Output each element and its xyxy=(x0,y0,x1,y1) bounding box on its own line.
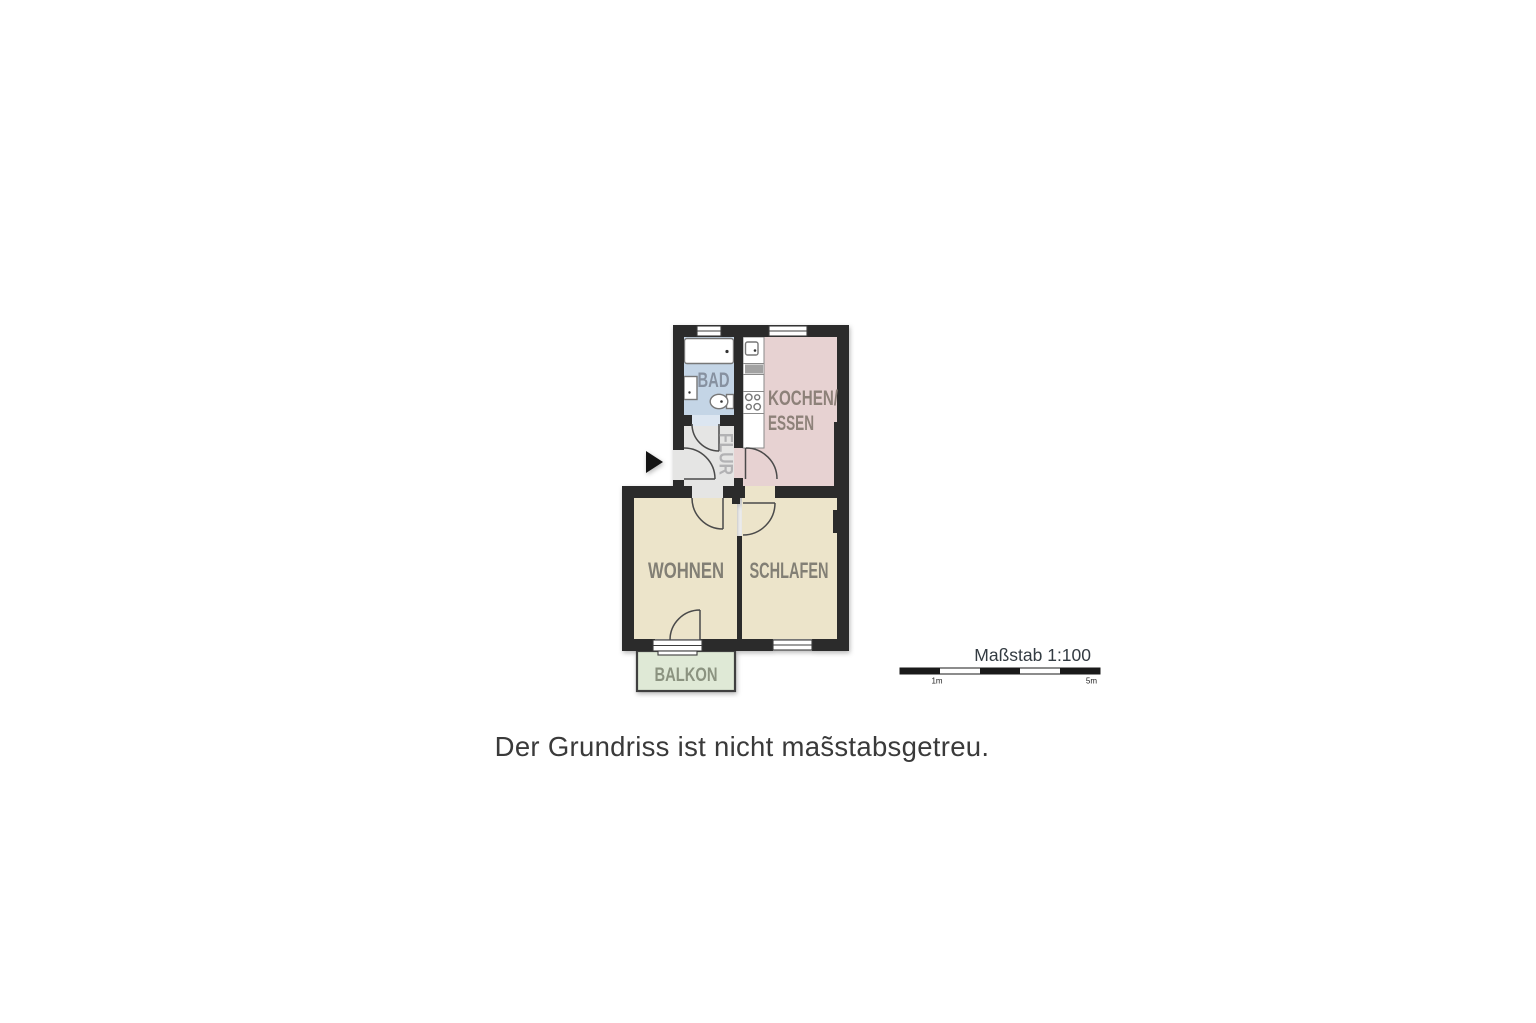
kitchen-hatch-icon xyxy=(746,365,762,374)
wall-left-upper xyxy=(673,337,684,450)
wall-bad-bottom-left xyxy=(684,415,692,426)
schlafen-doorway-floor xyxy=(745,486,775,498)
wall-mid-stub xyxy=(723,486,745,498)
wohnen-doorway-floor xyxy=(692,486,723,498)
label-kochen-line1: KOCHEN/ xyxy=(768,387,838,410)
toilet-icon xyxy=(710,394,733,408)
wall-kochen-door-stub xyxy=(734,478,743,486)
floor-plan-canvas: BAD KOCHEN/ ESSEN FLUR WOHNEN SCHLAFEN B… xyxy=(0,0,1536,1023)
kitchen-sink-icon xyxy=(746,342,759,355)
scale-tick-5m: 5m xyxy=(1086,677,1097,686)
kitchen-unit xyxy=(743,337,764,448)
label-wohnen: WOHNEN xyxy=(648,558,724,583)
wall-mid-left xyxy=(622,486,692,498)
kitchen-faucet-dot xyxy=(754,349,757,352)
wall-bottom-right xyxy=(812,639,849,651)
entrance-doorway-floor xyxy=(673,450,684,480)
bad-doorway-floor xyxy=(692,415,720,426)
wall-mid-right xyxy=(775,486,849,498)
scale-title: Maßstab 1:100 xyxy=(974,645,1091,665)
wall-bad-kitchen xyxy=(734,337,743,448)
bathtub-drain-dot xyxy=(725,350,728,353)
wall-bottom-left xyxy=(622,639,655,651)
wall-divider-stub xyxy=(732,498,740,504)
balcony-door-sill xyxy=(658,651,697,655)
label-bad: BAD xyxy=(698,369,730,392)
wall-wohnen-schlafen xyxy=(737,536,742,639)
scale-bar: Maßstab 1:100 1m 5m xyxy=(900,645,1100,686)
label-balkon: BALKON xyxy=(655,664,718,686)
scale-segment xyxy=(980,668,1020,674)
wall-right-notch-schlafen xyxy=(833,510,837,533)
scale-tick-1m: 1m xyxy=(931,677,942,686)
wall-bad-bottom-right xyxy=(720,415,734,426)
bath-sink-dot xyxy=(688,391,690,393)
wall-left-upper-stub xyxy=(673,480,684,486)
label-schlafen: SCHLAFEN xyxy=(750,558,829,583)
scale-segment xyxy=(900,668,940,674)
entrance-arrow-icon xyxy=(646,451,663,473)
scale-segment xyxy=(1060,668,1100,674)
floor-plan: BAD KOCHEN/ ESSEN FLUR WOHNEN SCHLAFEN B… xyxy=(622,325,849,691)
label-kochen-line2: ESSEN xyxy=(768,412,814,435)
page: BAD KOCHEN/ ESSEN FLUR WOHNEN SCHLAFEN B… xyxy=(0,0,1536,1023)
bath-sink-icon xyxy=(684,377,697,400)
wall-left-lower xyxy=(622,498,634,651)
caption: Der Grundriss ist nicht mas̃stabsgetreu. xyxy=(0,731,1484,763)
label-flur: FLUR xyxy=(715,433,736,475)
wall-right-notch-kochen xyxy=(834,422,837,486)
wall-bottom-mid xyxy=(700,639,773,651)
